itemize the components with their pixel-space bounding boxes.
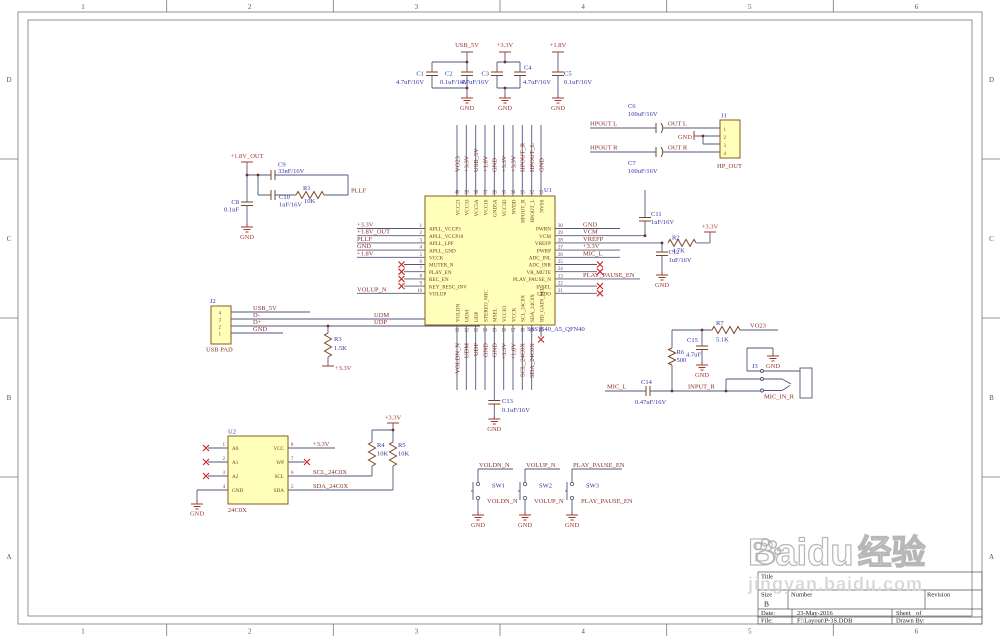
svg-text:VOLUP: VOLUP [429,292,446,298]
schematic-page: 123456 123456 DCBA DCBA [0,0,1000,636]
svg-text:+3.3V: +3.3V [583,243,600,250]
c5-ref: C5 [564,71,572,78]
frame-row-letters-left: DCBA [6,76,11,561]
svg-text:14: 14 [483,329,488,334]
svg-text:GND: GND [492,343,499,357]
sw3-ref: SW3 [586,483,599,490]
svg-text:VREFP: VREFP [535,241,551,247]
svg-text:NVSS: NVSS [539,199,545,212]
net-label-scl: SCL_24C0X [313,469,347,476]
svg-text:B: B [989,394,994,402]
sw1-net-bottom: VOLDN_N [487,498,518,505]
j3-jack-body [800,368,812,398]
svg-text:SCL: SCL [274,474,284,480]
c3-ref: C3 [481,71,489,78]
sw1-net-top: VOLDN_N [479,462,510,469]
svg-text:PLAY_PAUSE_EN: PLAY_PAUSE_EN [583,272,635,279]
svg-text:17: 17 [511,329,516,334]
svg-text:4: 4 [223,485,226,490]
c6-ref: C6 [628,103,636,110]
sw3-net-top: PLAY_PAUSE_EN [573,462,625,469]
svg-text:38: 38 [473,191,478,196]
svg-text:VCCK: VCCK [511,307,517,322]
switch-sw2 [518,469,527,512]
svg-text:26: 26 [558,253,563,258]
svg-text:3: 3 [415,3,419,11]
net-label-usb5v-j2: USB_5V [253,305,277,312]
svg-text:HPOUT_R: HPOUT_R [521,199,527,223]
net-label-inputr: INPUT_R [688,384,715,391]
sheet-label: Sheet [896,610,911,617]
r3-ref: R3 [334,336,342,343]
svg-text:15: 15 [492,329,497,334]
r3-val: 1.5K [334,345,347,352]
svg-text:VCM: VCM [583,229,598,236]
svg-text:35: 35 [501,191,506,196]
u2-part: 24C0X [228,507,247,514]
gnd-label: GND [498,105,512,112]
svg-text:34: 34 [511,191,516,196]
c11-val: 1uF/16V [651,219,674,226]
c7-ref: C7 [628,160,636,167]
u2-right-pin-numbers: 8765 [291,443,294,490]
svg-text:29: 29 [558,231,563,236]
c4-ref: C4 [524,65,532,72]
sw2-net-top: VOLUP_N [526,462,556,469]
svg-text:21: 21 [558,289,563,294]
net-label-hpoutr: HPOUT R [590,145,618,152]
svg-text:APLL_VCCP18: APLL_VCCP18 [429,234,464,240]
svg-text:1: 1 [223,443,226,448]
svg-text:VCCIO: VCCIO [502,306,508,322]
r5-ref: R5 [398,442,406,449]
gnd-label: GND [460,105,474,112]
svg-text:24: 24 [558,267,563,272]
svg-text:4: 4 [581,3,585,11]
file-value: F:\Layout\P-3S.DDB [797,618,853,625]
svg-text:32: 32 [529,191,534,196]
sw2-net-bottom: VOLUP_N [534,498,564,505]
svg-text:GND: GND [583,222,597,229]
number-label: Number [791,592,813,599]
net-label-pllf: PLLF [351,188,367,195]
svg-text:+3.3V: +3.3V [501,343,508,360]
j3-ref: J3 [752,363,758,370]
svg-text:5: 5 [748,628,752,636]
r7-val: 5.1K [716,337,729,344]
c6-val: 100uF/16V [628,111,658,118]
svg-text:C: C [989,235,994,243]
net-label-micinr: MIC_IN_R [764,394,795,401]
svg-text:ADC_INR: ADC_INR [529,263,552,269]
svg-text:HD_GAIN_SEL: HD_GAIN_SEL [539,287,545,322]
svg-text:VOLDN_N: VOLDN_N [454,343,461,374]
svg-text:SCL_24C0X: SCL_24C0X [520,343,527,377]
svg-text:UDP: UDP [473,343,480,356]
c1-ref: C1 [416,71,424,78]
sw2-ref: SW2 [539,483,552,490]
svg-text:VOLUP_N: VOLUP_N [357,286,387,293]
c13-val: 0.1uF/16V [502,407,530,414]
c11-ref: C11 [651,211,662,218]
svg-text:+1.8V: +1.8V [510,343,517,360]
gnd-label: GND [678,134,692,141]
c10-val: 1uF/16V [279,202,302,209]
c4-val: 4.7uF/16V [523,79,551,86]
schematic-drawing: 123456 123456 DCBA DCBA [0,0,1000,636]
svg-text:USB_5V: USB_5V [473,148,480,172]
c1-val: 4.7uF/16V [396,79,424,86]
c3-val: 4.7uF/16V [461,79,489,86]
svg-text:GND5A: GND5A [493,199,499,217]
resistor-r6 [669,348,676,365]
svg-text:11: 11 [455,329,460,334]
revision-label: Revision [927,592,951,599]
power-label-3v3-r3: +3.3V [335,365,352,372]
svg-text:B: B [7,394,12,402]
svg-text:PLLF: PLLF [357,236,373,243]
svg-text:UDP: UDP [474,312,480,322]
svg-text:22: 22 [558,282,563,287]
resistor-r3 [325,333,332,357]
c15-val: 4.7uF [686,352,701,359]
u2-ref: U2 [228,429,236,436]
gnd-label: GND [471,522,485,529]
net-label-outr: OUT R [668,145,688,152]
gnd-label: GND [655,282,669,289]
svg-text:A2: A2 [232,474,239,480]
j3-jack-contacts [761,370,764,393]
svg-text:3: 3 [223,471,226,476]
svg-text:VO23: VO23 [454,156,461,172]
svg-text:VOLDN: VOLDN [455,304,461,322]
u1-left-pin-numbers: 12345678910 [417,224,422,294]
power-label-3v3-top: +3.3V [497,42,514,49]
u1-right-pin-numbers: 30292827262524232221 [558,224,563,294]
net-label-micl: MIC_L [607,384,627,391]
svg-text:HPOUT_R: HPOUT_R [520,142,527,172]
drawn-by-label: Drawn By: [896,618,925,625]
svg-text:2: 2 [223,457,226,462]
power-label-1v8out: +1.8V_OUT [230,153,263,160]
svg-text:+3.3V: +3.3V [464,155,471,172]
svg-text:PWRN: PWRN [536,227,551,233]
u1-top-pin-numbers: 40393837363534333231 [455,191,544,196]
net-label-vo23: VO23 [750,323,766,330]
svg-text:+1.8V_OUT: +1.8V_OUT [357,229,390,236]
net-label-outl: OUT L [668,121,687,128]
svg-text:UDM: UDM [465,310,471,322]
j2-connector-body [211,306,231,344]
switch-sw1 [471,469,480,512]
r7-ref: R7 [716,320,724,327]
svg-text:+3.3V: +3.3V [357,222,374,229]
c14-val: 0.47uF/16V [635,399,667,406]
svg-text:MSEL: MSEL [493,308,499,322]
net-label-dp: D+ [253,319,262,326]
c8-ref: C8 [231,199,239,206]
svg-text:VCC33: VCC33 [465,199,471,215]
r4-val: 10K [377,451,389,458]
svg-text:3: 3 [415,628,419,636]
svg-text:HPOUT_L: HPOUT_L [529,143,536,172]
svg-text:SDA_24C0X: SDA_24C0X [529,343,536,378]
svg-text:+3.3V: +3.3V [510,155,517,172]
svg-text:13: 13 [473,329,478,334]
c7-val: 100uF/16V [628,168,658,175]
svg-text:VCC23: VCC23 [455,199,461,215]
svg-text:SDA: SDA [274,488,285,494]
gnd-label: GND [190,511,204,518]
power-label-3v3-r45: +3.3V [385,415,402,422]
svg-text:18: 18 [520,329,525,334]
svg-text:6: 6 [915,628,919,636]
svg-text:PLAY_PAUSE_N: PLAY_PAUSE_N [513,277,551,283]
svg-text:VCC18: VCC18 [483,199,489,215]
svg-text:33: 33 [520,191,525,196]
r6-val: 500 [677,357,687,364]
svg-text:+3.3V: +3.3V [501,155,508,172]
j2-name: USB PAD [206,347,233,354]
j1-name: HP_OUT [717,163,742,170]
svg-text:28: 28 [558,238,563,243]
resistor-r4 [369,442,376,466]
svg-text:VCC3D: VCC3D [502,199,508,216]
svg-text:MIC_L: MIC_L [583,250,603,257]
svg-text:SCL_24C0X: SCL_24C0X [521,295,527,322]
resistor-r7 [712,327,740,334]
svg-text:A: A [989,553,994,561]
gnd-label: GND [487,426,501,433]
r2-ref: R2 [672,235,680,242]
svg-text:A0: A0 [232,446,239,452]
svg-text:2: 2 [248,628,252,636]
svg-text:GND: GND [482,343,489,357]
power-label-usb5v: USB_5V [455,42,479,49]
net-label-hpoutl: HPOUT L [590,121,617,128]
switch-sw3 [565,469,574,512]
svg-text:VCC5A: VCC5A [474,199,480,216]
svg-text:+1.8V: +1.8V [357,250,374,257]
svg-text:A: A [6,553,11,561]
svg-text:30: 30 [558,224,563,229]
svg-text:6: 6 [291,471,294,476]
title-label: Title [761,574,773,581]
svg-text:40: 40 [455,191,460,196]
c8-val: 0.1uF [224,207,239,214]
svg-text:27: 27 [558,246,563,251]
svg-text:37: 37 [483,191,488,196]
net-label-udp: UDP [374,319,387,326]
svg-text:UDM: UDM [464,343,471,358]
svg-text:APLL_LPF: APLL_LPF [429,241,454,247]
c13-ref: C13 [502,398,513,405]
r1-ref: R1 [303,185,311,192]
svg-text:PWRP: PWRP [537,248,551,254]
title-block: Title Size B Number Revision Date: 23-Ma… [758,572,982,625]
u1-top-net-labels: VO23+3.3VUSB_5V+1.8VGND+3.3V+3.3VHPOUT_R… [454,142,545,172]
svg-text:VCCK: VCCK [429,256,444,262]
sw3-net-bottom: PLAY_PAUSE_EN [581,498,633,505]
svg-text:5: 5 [291,485,294,490]
svg-text:39: 39 [464,191,469,196]
svg-text:VCM: VCM [539,234,551,240]
svg-text:PLAY_EN: PLAY_EN [429,270,452,276]
power-label-3v3-r2: +3.3V [702,224,719,231]
c14-ref: C14 [641,379,653,386]
gnd-label: GND [518,522,532,529]
svg-text:10: 10 [417,289,422,294]
svg-text:23: 23 [558,274,563,279]
svg-text:WP: WP [276,460,284,466]
svg-text:MUTER_N: MUTER_N [429,263,454,269]
svg-text:A1: A1 [232,460,239,466]
svg-text:5: 5 [748,3,752,11]
svg-text:GND: GND [232,488,243,494]
svg-text:GND: GND [357,243,371,250]
u1-ref: U1 [544,187,552,194]
c9-val: 33nF/16V [278,168,305,175]
gnd-label: GND [565,522,579,529]
svg-text:APLL_VCCP3: APLL_VCCP3 [429,227,461,233]
svg-text:1: 1 [81,628,85,636]
j2-ref: J2 [210,298,216,305]
size-label: Size [761,592,772,599]
net-label-udm: UDM [374,312,389,319]
svg-text:KEY_RESC_INV: KEY_RESC_INV [429,284,467,290]
file-label: File: [761,618,773,625]
svg-text:VREFP: VREFP [583,236,604,243]
svg-text:1: 1 [81,3,85,11]
svg-text:VR_MUTE: VR_MUTE [527,270,552,276]
svg-text:APLL_GND: APLL_GND [429,248,456,254]
net-label-dm: D- [253,312,260,319]
r5-val: 10K [398,451,410,458]
svg-text:8: 8 [291,443,294,448]
svg-text:D: D [6,76,11,84]
c5-val: 0.1uF/16V [564,79,592,86]
net-label-3v3-u2: +3.3V [313,441,330,448]
svg-text:HPOUT_L: HPOUT_L [530,200,536,223]
c10-ref: C10 [279,194,290,201]
svg-text:36: 36 [492,191,497,196]
svg-text:C: C [7,235,12,243]
c12-ref: C12 [669,249,680,256]
sheet-of-label: of [916,610,922,617]
u2-left-pin-numbers: 1234 [223,443,226,490]
svg-text:ADC_INL: ADC_INL [529,256,551,262]
date-label: Date: [761,610,775,617]
svg-text:4: 4 [581,628,585,636]
svg-text:2: 2 [248,3,252,11]
u1-part: SSS1540_A5_QFN40 [527,326,585,333]
r4-ref: R4 [377,442,385,449]
gnd-label: GND [695,372,709,379]
gnd-label: GND [551,105,565,112]
svg-text:SDA_24C0X: SDA_24C0X [530,294,536,322]
svg-text:6: 6 [915,3,919,11]
c15-ref: C15 [687,337,698,344]
c12-val: 1uF/16V [669,257,692,264]
svg-text:12: 12 [464,329,469,334]
svg-text:GND: GND [538,158,545,172]
frame-row-letters-right: DCBA [989,76,994,561]
svg-text:GND: GND [492,158,499,172]
svg-text:7: 7 [291,457,294,462]
svg-text:16: 16 [501,329,506,334]
power-label-1v8-top: +1.8V [550,42,567,49]
svg-text:NVDD: NVDD [511,199,517,214]
date-value: 23-May-2016 [797,610,833,617]
svg-text:STEREO_MIC: STEREO_MIC [483,289,489,322]
svg-text:D: D [989,76,994,84]
size-value: B [764,600,769,609]
gnd-label: GND [766,363,780,370]
svg-text:+1.8V: +1.8V [482,155,489,172]
net-label-gnd-j2: GND [253,326,267,333]
svg-text:VCC: VCC [273,446,284,452]
gnd-label: GND [240,234,254,241]
sw1-ref: SW1 [492,483,505,490]
c2-ref: C2 [445,71,453,78]
r6-ref: R6 [677,349,685,356]
j1-ref: J1 [721,113,727,120]
r1-val: 10K [304,198,316,205]
resistor-r5 [390,442,397,466]
svg-text:REC_EN: REC_EN [429,277,449,283]
net-label-sda: SDA_24C0X [313,483,348,490]
svg-text:25: 25 [558,260,563,265]
